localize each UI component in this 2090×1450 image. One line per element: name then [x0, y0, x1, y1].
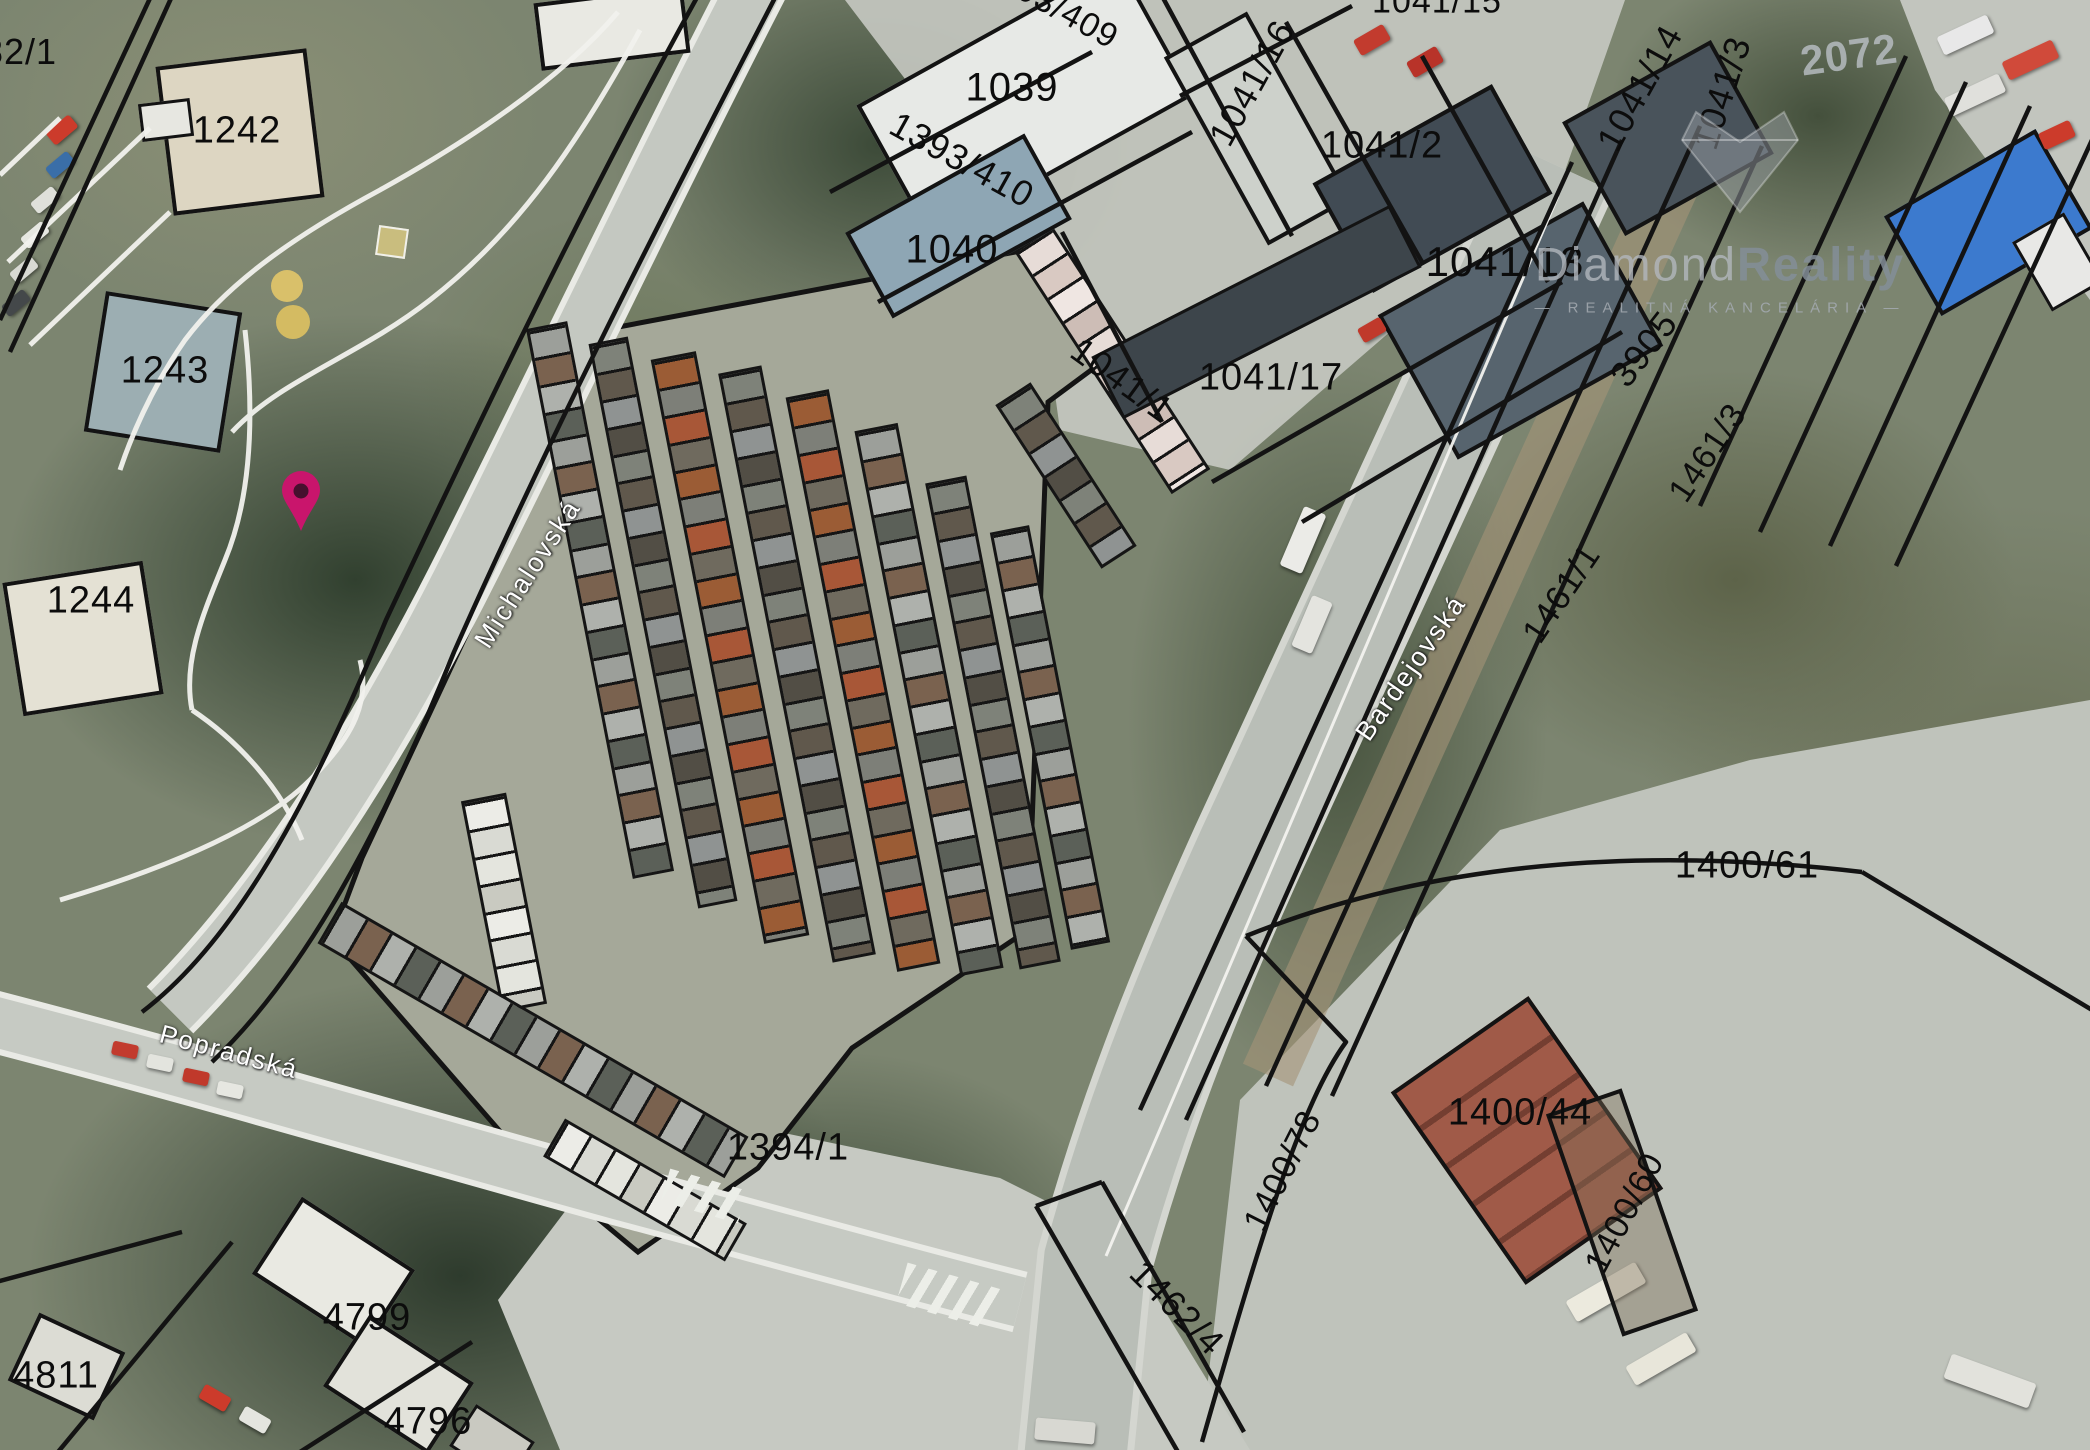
parcel-label-1041-15: 1041/15 [1372, 0, 1502, 22]
parcel-label-1244: 1244 [47, 580, 136, 623]
parcel-label-1242: 1242 [193, 110, 282, 153]
parcel-label-1041-13: 1041/13 [1426, 238, 1585, 286]
parcel-label-4796: 4796 [384, 1401, 473, 1444]
parcel-label-4799: 4799 [323, 1297, 412, 1340]
parcel-label-1243: 1243 [121, 350, 210, 393]
parcel-label-1040: 1040 [906, 228, 999, 273]
parcel-label-1400-44: 1400/44 [1448, 1092, 1592, 1135]
parcel-label-1039: 1039 [966, 66, 1059, 111]
parcel-label-82-1: 82/1 [0, 31, 57, 73]
parcel-label-1394-1: 1394/1 [727, 1127, 849, 1170]
parcel-label-1400-61: 1400/61 [1675, 845, 1819, 888]
parcel-label-1041-17: 1041/17 [1199, 357, 1343, 400]
cadastral-layer [0, 0, 2090, 1450]
parcel-label-1041-2: 1041/2 [1321, 125, 1443, 168]
satellite-cadastral-map[interactable]: 82/1 1242 1243 1244 1039 1393/410 1393/4… [0, 0, 2090, 1450]
parcel-label-4811: 4811 [13, 1355, 99, 1398]
